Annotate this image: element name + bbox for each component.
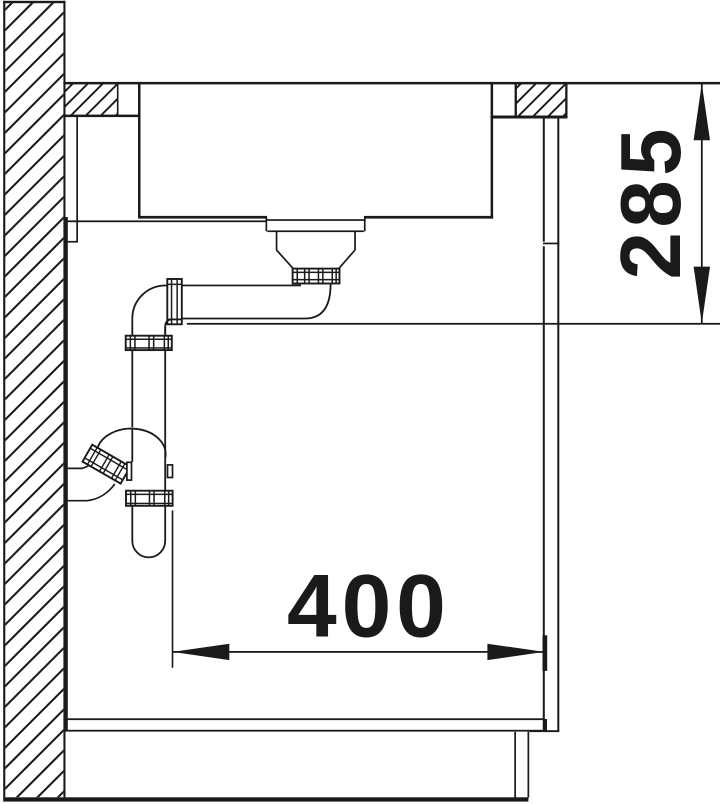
svg-text:285: 285 (604, 124, 699, 280)
svg-text:400: 400 (287, 555, 451, 655)
